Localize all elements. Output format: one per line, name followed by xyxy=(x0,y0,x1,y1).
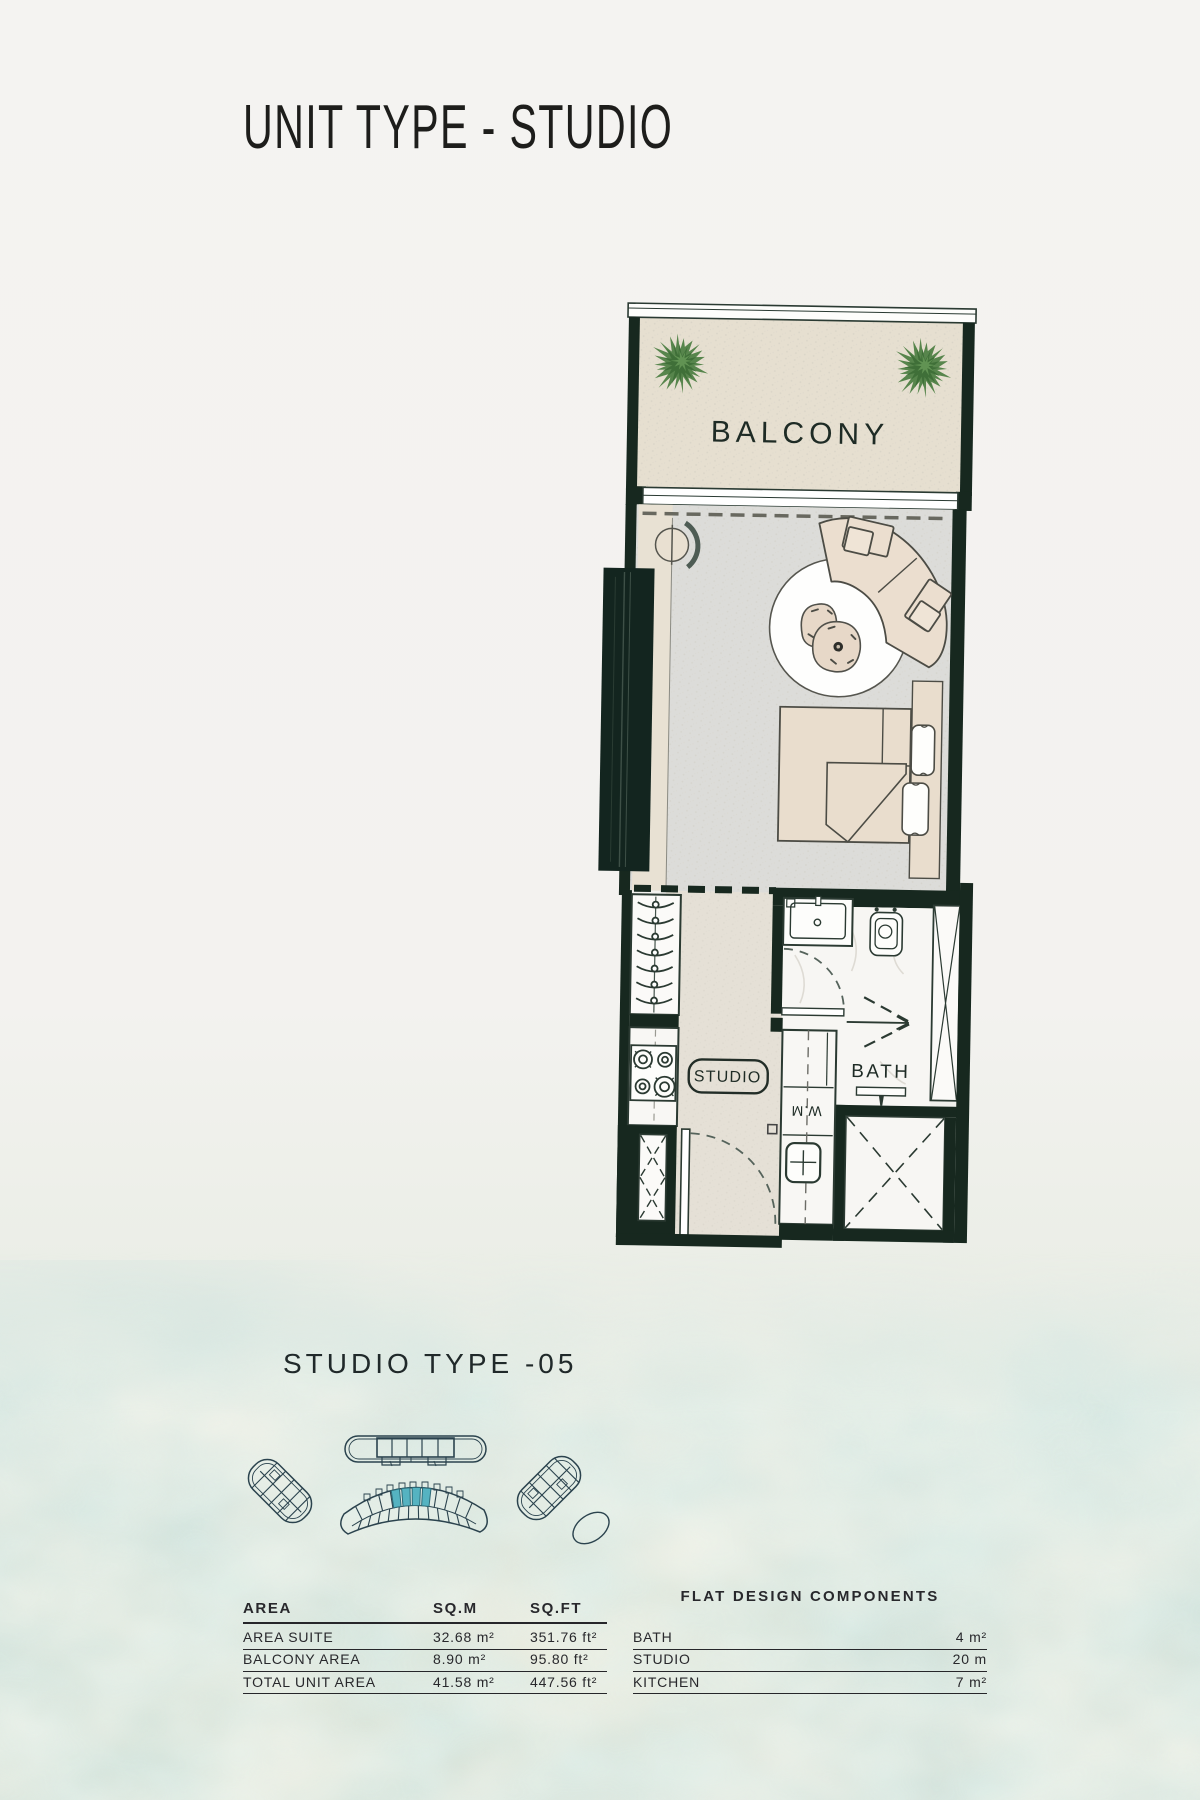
svg-text:STUDIO: STUDIO xyxy=(694,1068,762,1086)
svg-text:W.M: W.M xyxy=(790,1103,821,1120)
svg-text:BATH: BATH xyxy=(851,1061,911,1083)
svg-text:BALCONY: BALCONY xyxy=(710,415,889,451)
